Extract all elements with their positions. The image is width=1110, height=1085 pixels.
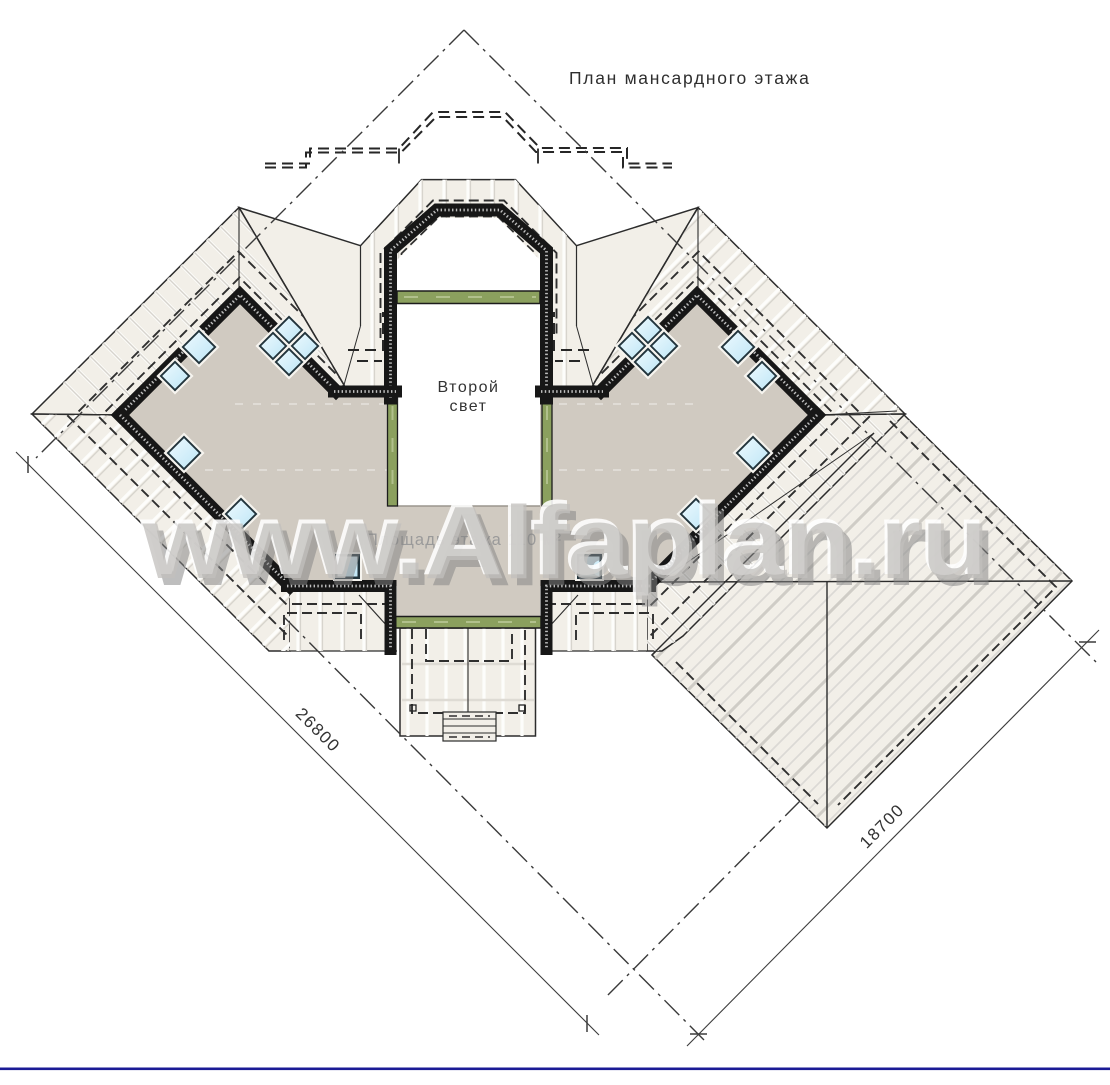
- svg-text:План мансардного этажа: План мансардного этажа: [569, 68, 810, 88]
- svg-text:свет: свет: [449, 398, 487, 415]
- svg-text:www.Alfaplan.ru: www.Alfaplan.ru: [142, 485, 988, 600]
- svg-text:Второй: Второй: [438, 379, 500, 396]
